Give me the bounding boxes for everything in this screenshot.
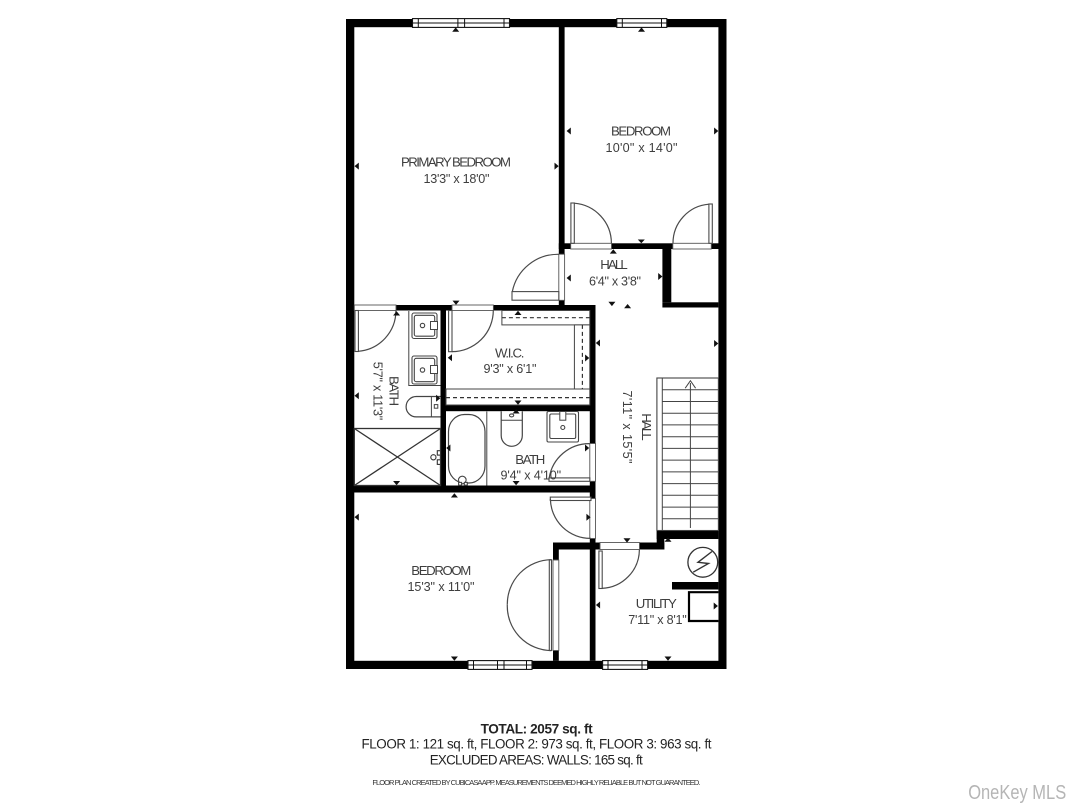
svg-text:HALL: HALL [600,257,628,272]
svg-text:OneKey MLS: OneKey MLS [968,782,1066,804]
svg-text:BATH: BATH [387,376,402,406]
svg-text:FLOOR PLAN CREATED BY CUBICASA: FLOOR PLAN CREATED BY CUBICASA APP. MEAS… [372,778,700,787]
svg-text:5'7" x 11'3": 5'7" x 11'3" [371,362,385,421]
svg-text:BEDROOM: BEDROOM [611,124,671,139]
svg-text:15'3" x 11'0": 15'3" x 11'0" [408,580,475,594]
svg-text:7'11" x 15'5": 7'11" x 15'5" [620,391,634,464]
svg-text:7'11" x 8'1": 7'11" x 8'1" [628,613,687,627]
svg-text:TOTAL: 2057 sq. ft: TOTAL: 2057 sq. ft [481,721,593,736]
svg-text:W.I.C.: W.I.C. [495,345,525,360]
svg-text:UTILITY: UTILITY [636,596,677,611]
svg-text:BEDROOM: BEDROOM [411,563,471,578]
svg-text:FLOOR 1: 121 sq. ft, FLOOR 2:: FLOOR 1: 121 sq. ft, FLOOR 2: 973 sq. ft… [362,737,712,752]
svg-text:13'3" x 18'0": 13'3" x 18'0" [424,172,490,186]
svg-text:BATH: BATH [515,452,545,467]
svg-text:9'4" x 4'10": 9'4" x 4'10" [501,469,562,483]
svg-text:6'4" x 3'8": 6'4" x 3'8" [589,275,641,289]
svg-text:9'3" x 6'1": 9'3" x 6'1" [484,362,537,376]
svg-text:10'0" x 14'0": 10'0" x 14'0" [606,141,678,155]
svg-text:HALL: HALL [639,413,654,441]
svg-text:EXCLUDED AREAS: WALLS: 165 sq.: EXCLUDED AREAS: WALLS: 165 sq. ft [430,752,643,767]
svg-text:PRIMARY BEDROOM: PRIMARY BEDROOM [401,155,511,170]
